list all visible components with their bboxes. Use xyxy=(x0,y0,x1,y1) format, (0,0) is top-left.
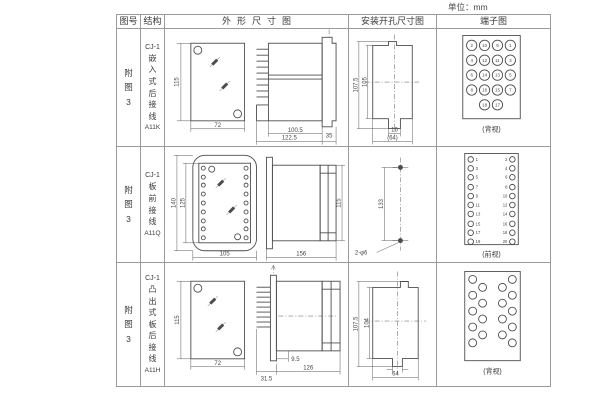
terminal-number: 20 xyxy=(503,239,508,244)
terminals xyxy=(469,275,517,346)
terminal-number: 16 xyxy=(482,87,487,92)
outline-drawing-a11k: 115 72 100.5 xyxy=(165,29,348,147)
terminal-number: 11 xyxy=(495,57,500,62)
terminal-number: 18 xyxy=(503,230,508,235)
structure-label: 嵌入式后接线 xyxy=(149,53,157,123)
terminal-number: 6 xyxy=(470,72,473,77)
terminal-number: 18 xyxy=(482,102,487,107)
terminal-number: 17 xyxy=(476,230,481,235)
row3-structure-cell: CJ-1 凸出式板后接线 A11H xyxy=(141,263,165,387)
model-label: CJ-1 xyxy=(145,172,160,179)
type-code: A11H xyxy=(145,367,161,374)
row2-figure-cell: 附图3 xyxy=(117,147,141,263)
terminal-number: 2 xyxy=(470,42,473,47)
type-code: A11K xyxy=(145,124,160,131)
figure-label: 附图3 xyxy=(124,183,133,226)
front-view: 115 72 xyxy=(175,281,245,370)
outline-drawing-a11q: 140 125 105 156 115 xyxy=(165,147,348,263)
terminal-number: 1 xyxy=(509,42,512,47)
header-figure: 图号 xyxy=(117,15,141,29)
row1-terminal-cell: 2 10 9 1 4 12 11 3 6 14 13 5 8 16 15 7 1… xyxy=(437,29,551,147)
terminal-number: 10 xyxy=(503,193,508,198)
terminal-number: 6 xyxy=(505,174,508,179)
dim-inner-height: 105 xyxy=(362,76,368,87)
dim-depth-total: 126 xyxy=(303,365,314,371)
side-view: 156 115 xyxy=(266,157,345,260)
side-view: 100.5 122.5 35 xyxy=(257,29,337,144)
dim-offset: 9.5 xyxy=(291,356,300,362)
mounting-drawing-a11k: 107.5 105 16 (64) xyxy=(349,29,436,147)
terminal-diagram-a11k: 2 10 9 1 4 12 11 3 6 14 13 5 8 16 15 7 1… xyxy=(437,29,550,147)
row2-terminal-cell: 1 3 5 7 9 11 13 15 17 19 2 4 6 8 10 12 1… xyxy=(437,147,551,263)
terminal-number: 4 xyxy=(470,57,473,62)
terminal-number: 7 xyxy=(476,184,479,189)
terminal-number: 15 xyxy=(495,87,500,92)
dim-hole-pitch: 133 xyxy=(379,198,385,209)
dim-width: 64 xyxy=(392,371,399,377)
dim-flange: 35 xyxy=(326,133,333,139)
terminal-number: 3 xyxy=(476,165,479,170)
unit-label: 单位：mm xyxy=(448,1,558,13)
view-caption: (背视) xyxy=(482,124,500,133)
terminals: 2 10 9 1 4 12 11 3 6 14 13 5 8 16 15 7 1… xyxy=(467,40,516,110)
dim-depth-total: 122.5 xyxy=(282,135,298,141)
spec-table: 图号 结构 外形尺寸图 安装开孔尺寸图 端子图 附图3 CJ-1 嵌入式后接线 … xyxy=(116,14,551,387)
terminal-number: 13 xyxy=(495,72,500,77)
terminal-number: 2 xyxy=(505,156,508,161)
row2-outline-cell: 140 125 105 156 115 xyxy=(165,147,349,263)
front-view: 140 125 105 xyxy=(171,155,256,260)
terminal-number: 5 xyxy=(476,174,479,179)
terminal-number: 12 xyxy=(503,202,508,207)
terminal-number: 9 xyxy=(476,193,479,198)
screw-mark xyxy=(208,296,226,332)
header-terminal: 端子图 xyxy=(437,15,551,29)
terminal-number: 8 xyxy=(470,87,473,92)
side-view: 9.5 31.5 126 xyxy=(257,265,341,382)
header-mounting: 安装开孔尺寸图 xyxy=(349,15,437,29)
row3-figure-cell: 附图3 xyxy=(117,263,141,387)
header-outline: 外形尺寸图 xyxy=(165,15,349,29)
type-code: A11Q xyxy=(144,230,160,237)
terminal-number: 5 xyxy=(509,72,512,77)
view-caption: (背视) xyxy=(483,366,501,375)
row3-mounting-cell: 107.5 104 64 xyxy=(349,263,437,387)
row2-structure-cell: CJ-1 板前接线 A11Q xyxy=(141,147,165,263)
dim-outer-height: 107.5 xyxy=(353,76,359,92)
row1-outline-cell: 115 72 100.5 xyxy=(165,29,349,147)
view-caption: (前视) xyxy=(482,249,500,258)
figure-label: 附图3 xyxy=(124,303,133,346)
terminal-strips xyxy=(201,166,248,240)
terminal-number: 14 xyxy=(482,72,487,77)
screw-mark xyxy=(216,178,237,215)
terminal-diagram-a11q: 1 3 5 7 9 11 13 15 17 19 2 4 6 8 10 12 1… xyxy=(437,147,550,263)
outline-drawing-a11h: 115 72 xyxy=(165,263,348,387)
dim-front-height: 115 xyxy=(174,76,180,86)
row3-terminal-cell: (背视) xyxy=(437,263,551,387)
terminal-number: 14 xyxy=(503,211,508,216)
dim-side-height: 115 xyxy=(337,197,343,207)
terminal-number: 7 xyxy=(509,87,512,92)
terminal-number: 15 xyxy=(476,221,481,226)
row3-outline-cell: 115 72 xyxy=(165,263,349,387)
figure-label: 附图3 xyxy=(124,66,133,109)
dim-front-width: 105 xyxy=(220,251,231,257)
terminal-number: 13 xyxy=(476,211,481,216)
terminal-number: 10 xyxy=(482,42,487,47)
dim-slot-width: 16 xyxy=(391,127,398,133)
terminal-number: 11 xyxy=(476,202,481,207)
structure-label: 凸出式板后接线 xyxy=(149,284,157,365)
hole-spec-label: 2-φ6 xyxy=(355,250,368,256)
dim-pin-depth: 31.5 xyxy=(261,376,273,382)
terminal-number: 19 xyxy=(476,239,481,244)
terminal-number: 17 xyxy=(495,102,500,107)
model-label: CJ-1 xyxy=(145,275,160,282)
terminal-number: 1 xyxy=(476,156,479,161)
terminal-diagram-a11h: (背视) xyxy=(437,263,550,387)
terminal-number: 8 xyxy=(505,184,508,189)
dim-front-width: 72 xyxy=(214,122,221,128)
dim-outer-height: 107.5 xyxy=(353,315,359,331)
row1-mounting-cell: 107.5 105 16 (64) xyxy=(349,29,437,147)
pins xyxy=(257,49,269,97)
terminals: 1 3 5 7 9 11 13 15 17 19 2 4 6 8 10 12 1… xyxy=(468,156,515,244)
mounting-drawing-a11h: 107.5 104 64 xyxy=(349,263,436,387)
row1-structure-cell: CJ-1 嵌入式后接线 A11K xyxy=(141,29,165,147)
dim-front-width: 72 xyxy=(214,360,221,366)
dim-inner-height: 125 xyxy=(180,197,186,208)
dim-outer-height: 140 xyxy=(171,197,177,208)
pins xyxy=(257,287,271,327)
terminal-number: 9 xyxy=(496,42,499,47)
terminal-number: 3 xyxy=(509,57,512,62)
row2-mounting-cell: 133 2-φ6 xyxy=(349,147,437,263)
model-label: CJ-1 xyxy=(145,44,160,51)
terminal-number: 12 xyxy=(482,57,487,62)
dim-front-height: 115 xyxy=(175,314,181,324)
dim-width: (64) xyxy=(387,135,398,141)
mounting-drawing-a11q: 133 2-φ6 xyxy=(349,147,436,263)
terminal-number: 4 xyxy=(505,165,508,170)
header-structure: 结构 xyxy=(141,15,165,29)
dim-inner-height: 104 xyxy=(364,317,370,328)
dim-depth: 156 xyxy=(296,251,307,257)
terminal-number: 16 xyxy=(503,221,508,226)
dim-depth-body: 100.5 xyxy=(288,127,304,133)
row1-figure-cell: 附图3 xyxy=(117,29,141,147)
front-view: 115 72 xyxy=(174,43,244,132)
structure-label: 板前接线 xyxy=(149,181,157,227)
screw-mark xyxy=(210,57,230,91)
